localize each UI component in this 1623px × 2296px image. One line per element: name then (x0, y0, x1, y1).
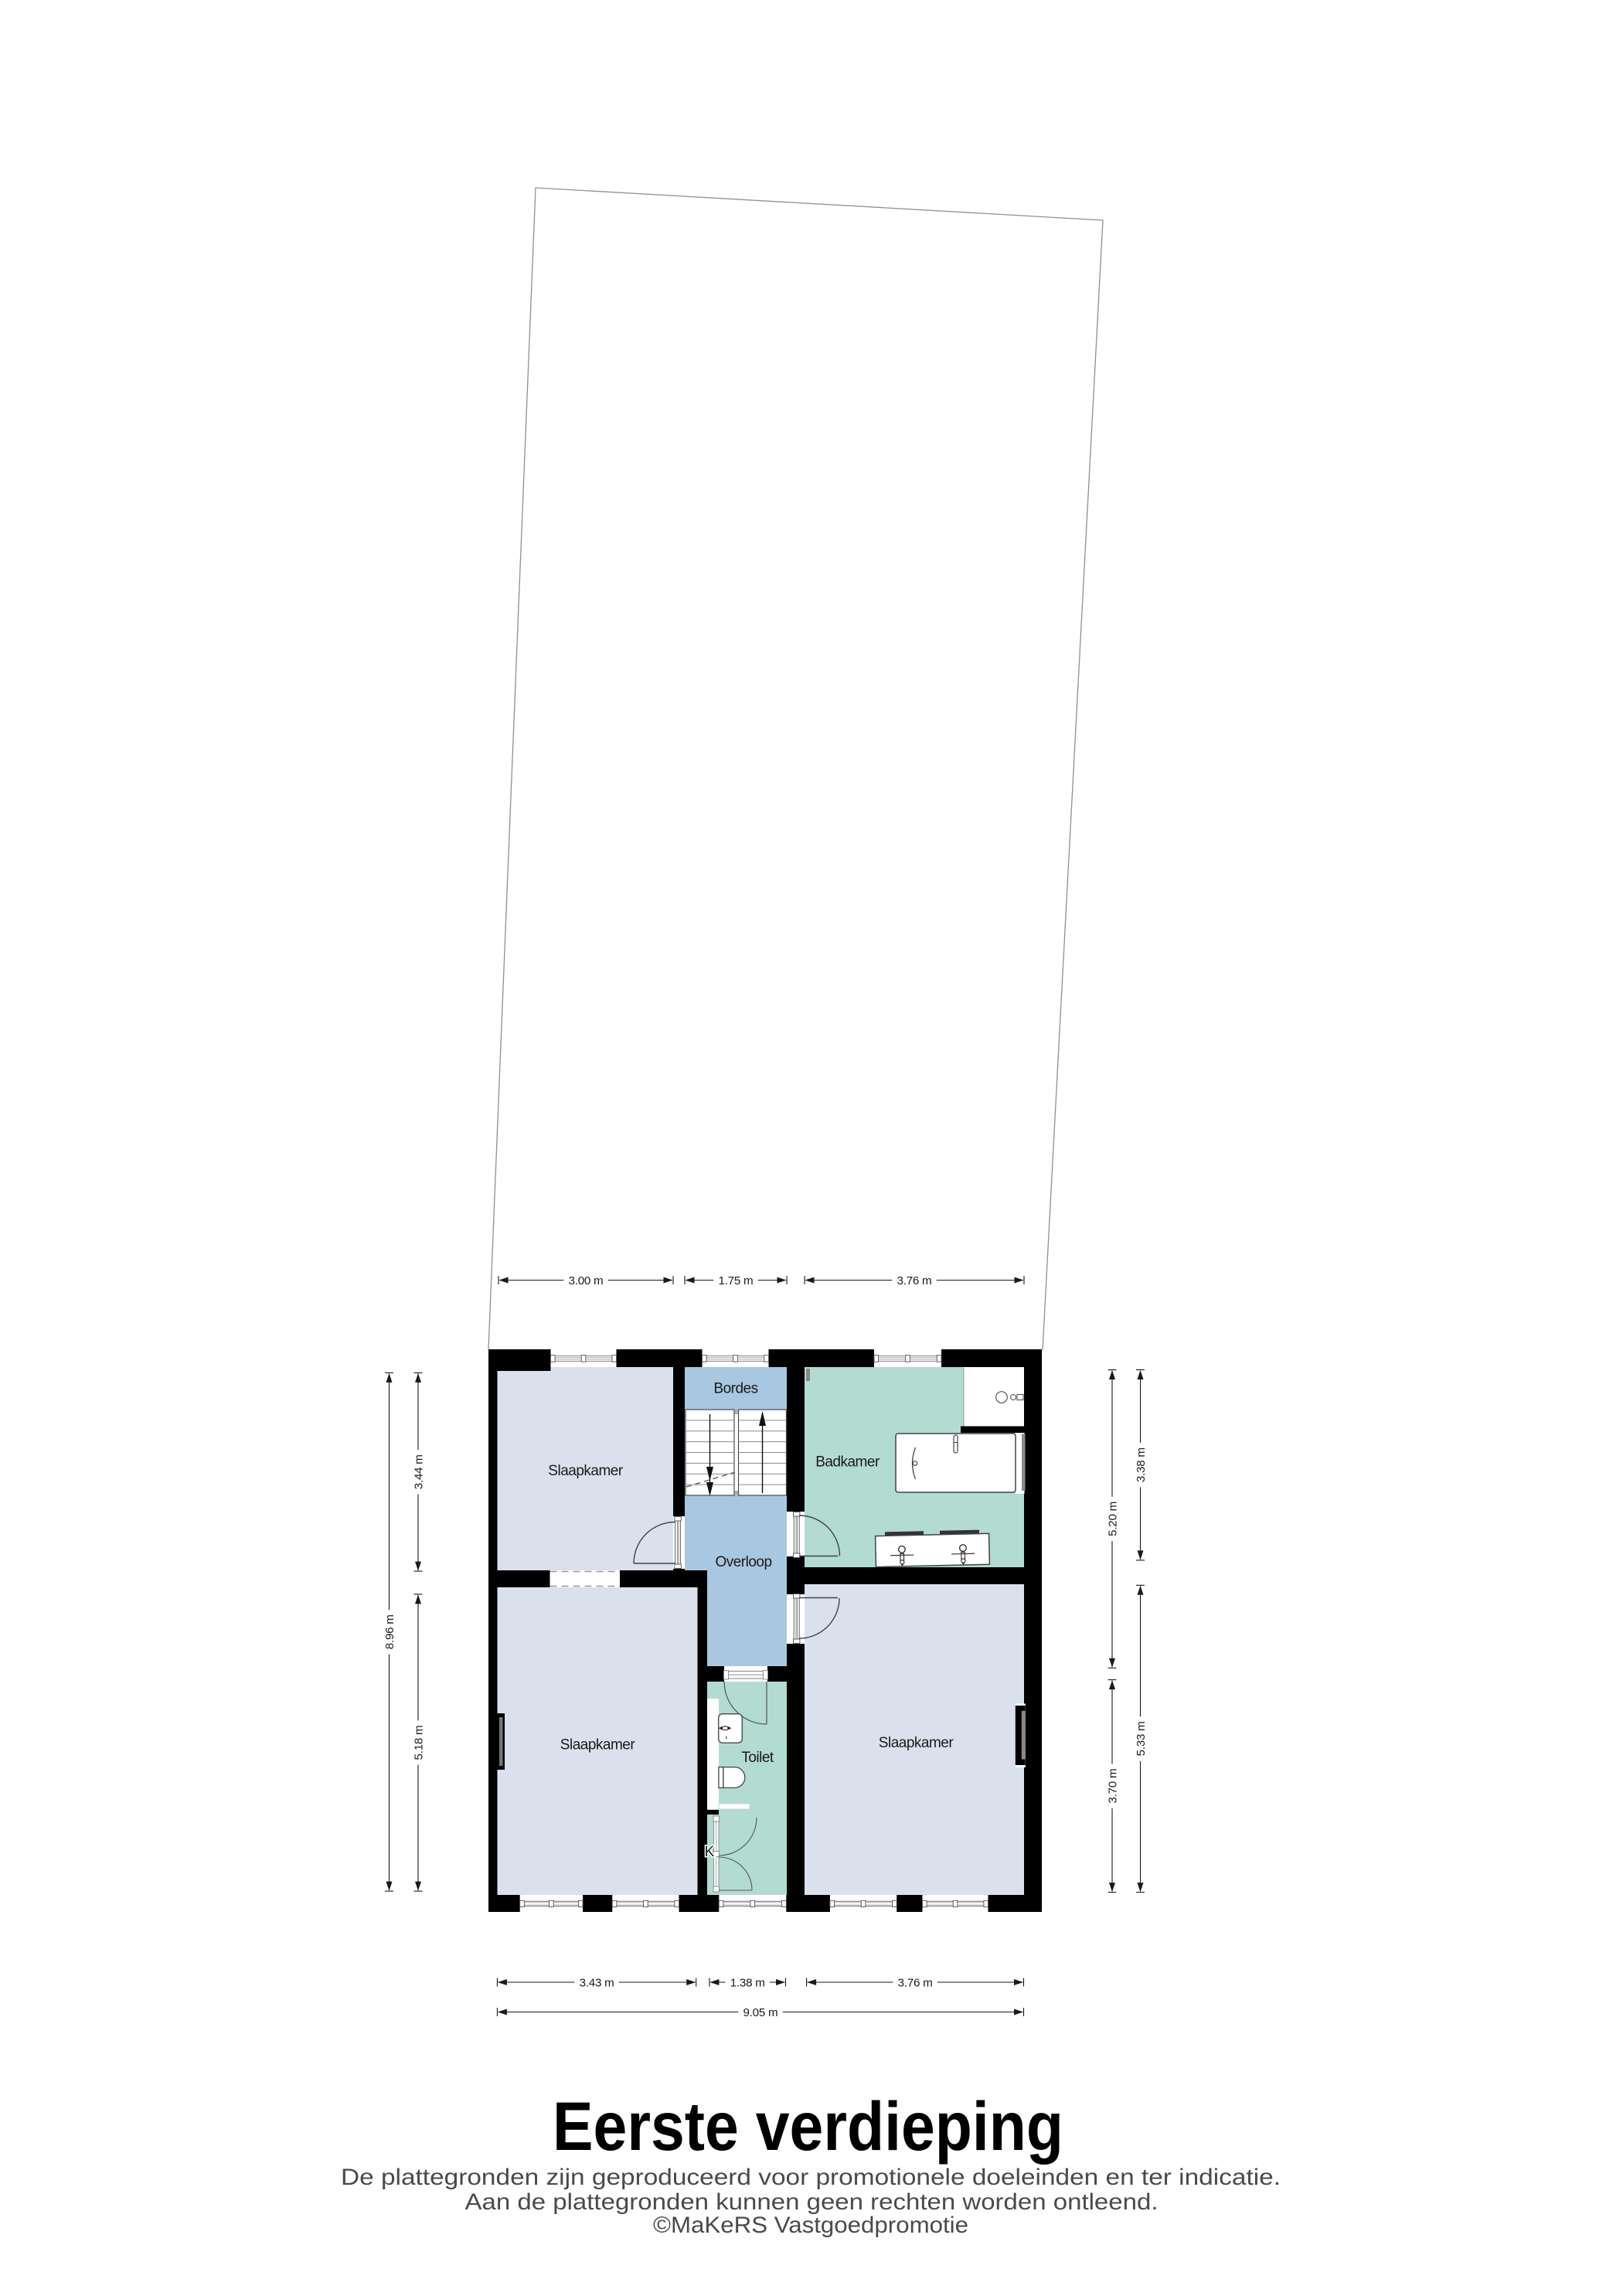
svg-text:5.33 m: 5.33 m (1135, 1721, 1148, 1756)
svg-text:8.96 m: 8.96 m (383, 1614, 396, 1649)
svg-text:9.05 m: 9.05 m (743, 2006, 777, 2019)
svg-text:3.43 m: 3.43 m (580, 1977, 614, 1990)
svg-text:1.75 m: 1.75 m (719, 1274, 754, 1287)
svg-text:3.44 m: 3.44 m (413, 1454, 426, 1489)
svg-text:Bordes: Bordes (713, 1381, 757, 1397)
svg-text:Slaapkamer: Slaapkamer (560, 1737, 636, 1753)
svg-text:1.38 m: 1.38 m (730, 1977, 765, 1990)
svg-text:De plattegronden zijn geproduc: De plattegronden zijn geproduceerd voor … (341, 2165, 1281, 2190)
svg-text:©MaKeRS Vastgoedpromotie: ©MaKeRS Vastgoedpromotie (653, 2213, 968, 2238)
svg-text:3.00 m: 3.00 m (569, 1274, 604, 1287)
svg-text:Slaapkamer: Slaapkamer (548, 1463, 624, 1479)
svg-text:Eerste verdieping: Eerste verdieping (553, 2087, 1063, 2165)
svg-text:Toilet: Toilet (741, 1750, 774, 1766)
svg-text:Slaapkamer: Slaapkamer (879, 1735, 954, 1751)
svg-text:K: K (705, 1844, 715, 1860)
svg-text:Aan de plattegronden kunnen ge: Aan de plattegronden kunnen geen rechten… (465, 2189, 1159, 2215)
svg-text:5.20 m: 5.20 m (1107, 1502, 1120, 1536)
svg-text:5.18 m: 5.18 m (413, 1726, 426, 1760)
svg-text:Badkamer: Badkamer (815, 1454, 880, 1471)
svg-text:3.38 m: 3.38 m (1135, 1447, 1148, 1482)
svg-text:3.70 m: 3.70 m (1107, 1769, 1120, 1804)
svg-text:Overloop: Overloop (715, 1554, 771, 1570)
svg-text:3.76 m: 3.76 m (898, 1977, 933, 1990)
svg-text:3.76 m: 3.76 m (897, 1274, 932, 1287)
